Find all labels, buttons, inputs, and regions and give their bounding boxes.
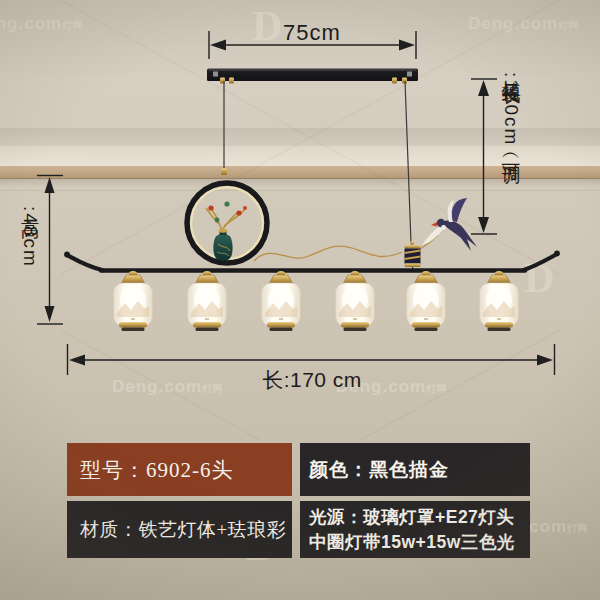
ring-ornament — [187, 168, 267, 263]
product-spec-image: Deng.com灯网Deng.com灯网Deng.com灯网Deng.com灯网… — [0, 0, 600, 600]
lamp-shade — [114, 271, 153, 331]
spec-model-text: 型号：6902-6头 — [80, 456, 234, 484]
spec-box-color: 颜色：黑色描金 — [300, 443, 530, 496]
lamp-shade — [480, 271, 519, 331]
bird-beak — [431, 222, 437, 227]
lantern-shades — [114, 271, 519, 331]
spec-box-model: 型号：6902-6头 — [67, 443, 292, 496]
dim-label-fixture-height: 高:48cm — [17, 204, 43, 304]
spec-box-light-source: 光源：玻璃灯罩+E27灯头 中圈灯带15w+15w三色光 — [300, 501, 530, 558]
lamp-bar — [64, 251, 560, 271]
mount-screw — [407, 72, 412, 77]
spec-box-material: 材质：铁艺灯体+珐琅彩 — [67, 501, 292, 558]
enamel-vase — [214, 229, 232, 261]
spec-light-line2: 中圈灯带15w+15w三色光 — [309, 530, 515, 555]
dim-label-fixture-length: 长:170 cm — [212, 366, 412, 394]
dim-line-right — [471, 79, 497, 234]
cylinder-ornament — [405, 241, 421, 267]
mount-screw — [213, 72, 218, 77]
ceiling-mount-bar — [207, 69, 418, 84]
lamp-shade — [188, 271, 227, 331]
spec-light-line1: 光源：玻璃灯罩+E27灯头 — [309, 505, 514, 530]
lamp-shade — [336, 271, 375, 331]
spec-material-text: 材质：铁艺灯体+珐琅彩 — [80, 517, 286, 543]
lamp-shade — [262, 271, 301, 331]
spec-color-text: 颜色：黑色描金 — [309, 457, 449, 483]
dim-label-drop-length: 掉线长:120cm（可调） — [498, 66, 524, 266]
suspension-wires — [224, 81, 413, 269]
dim-label-mount-width: 75cm — [232, 20, 392, 46]
lamp-shade — [407, 271, 446, 331]
ring-hanger-connector — [221, 168, 227, 175]
